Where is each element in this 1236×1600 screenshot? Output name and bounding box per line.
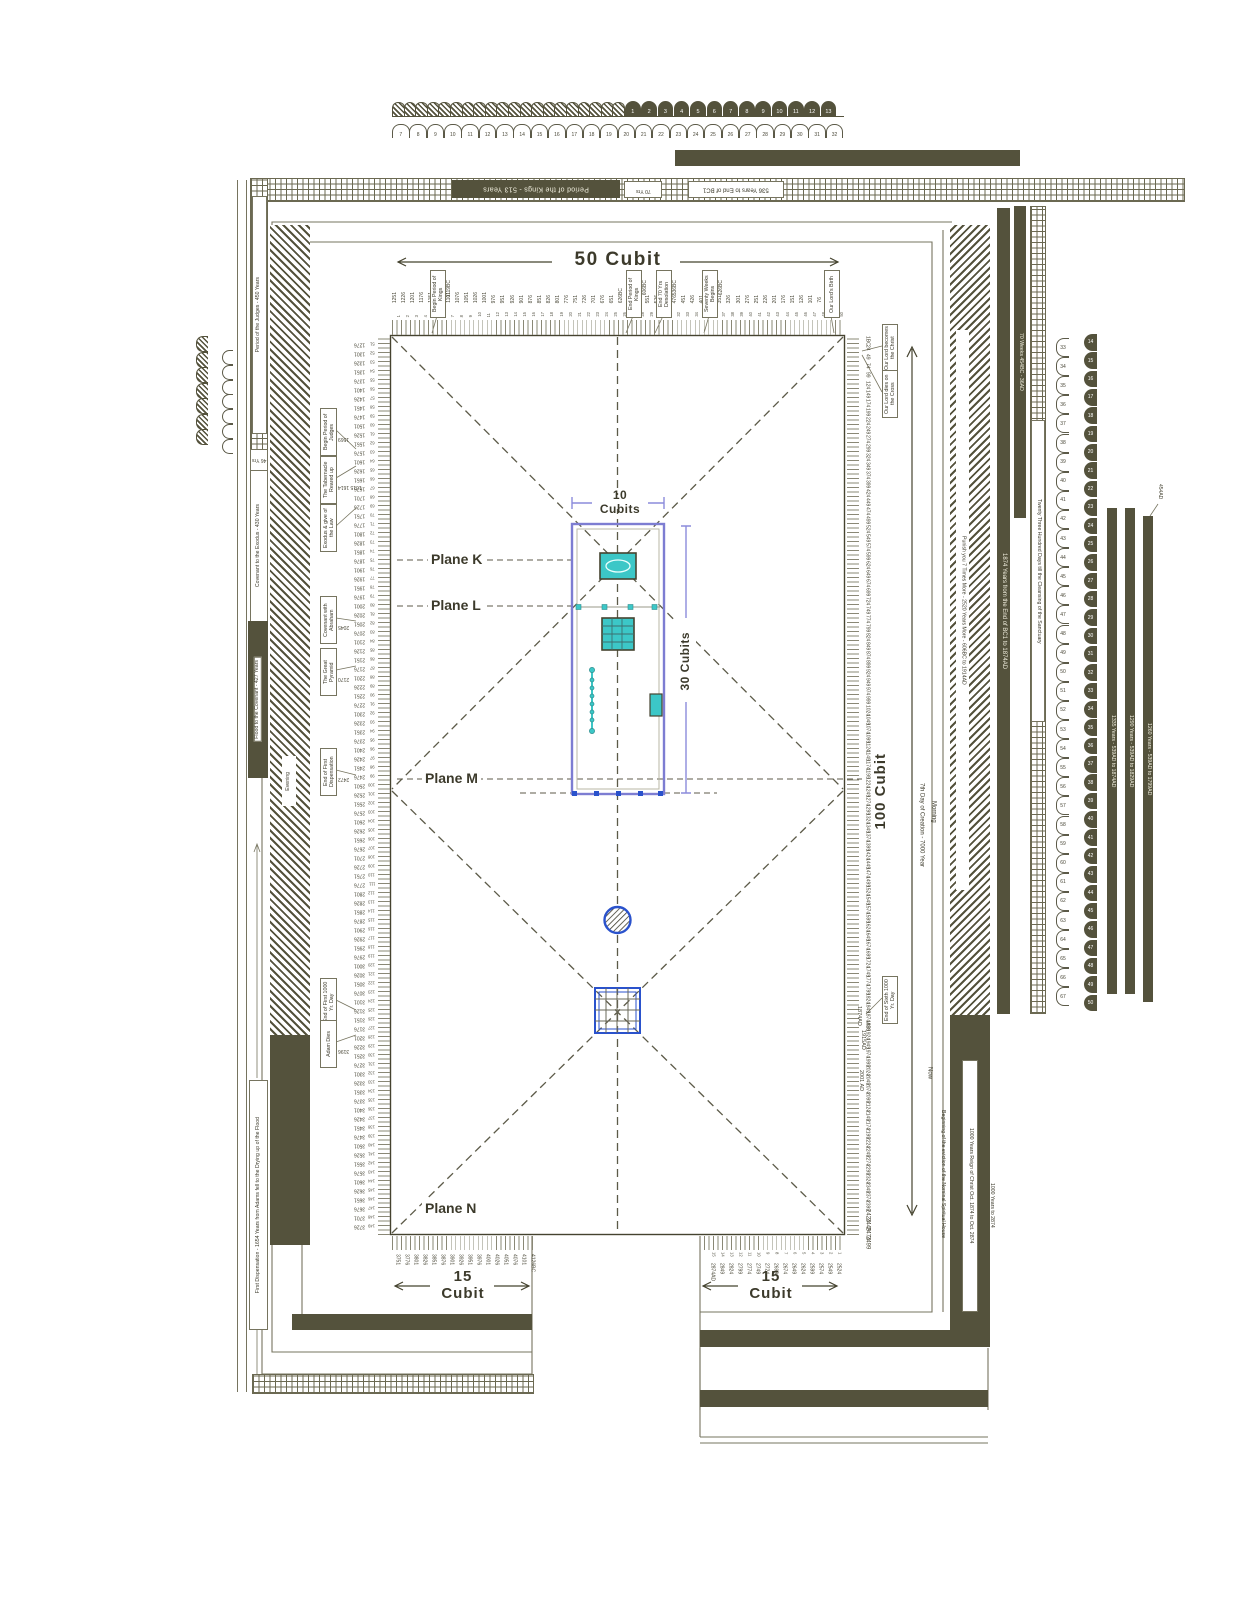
tick-year-label: 3426	[354, 1115, 365, 1121]
mini-hatched-scallop	[196, 429, 208, 445]
tick-year-label: 499	[864, 516, 870, 524]
tick-year-label: 749	[864, 606, 870, 614]
bottom-left-scale-fringe	[392, 1236, 534, 1250]
tick-year-label: 451	[682, 295, 688, 303]
tick-year-label: 349	[864, 462, 870, 470]
tick-year-label: 3176	[354, 1025, 365, 1031]
tick-year-label: 2226	[354, 683, 365, 689]
mini-hatched-scallop	[196, 336, 208, 352]
tick-year-label: 2051	[354, 620, 365, 626]
tick-cubit-label: 86	[370, 656, 375, 661]
tick-cubit-label: 11	[747, 1252, 752, 1256]
mini-arc-scallop	[222, 380, 233, 395]
numbered-dark-scallop: 12	[804, 101, 820, 116]
tick-year-label: 2574	[817, 1263, 823, 1274]
left-annotation-text: The Tabernacle Reared up	[322, 457, 336, 503]
tick-year-label: 574	[864, 543, 870, 551]
tick-year-label: 2674	[781, 1263, 787, 1274]
bottom-right-dark-bar-1	[700, 1330, 988, 1347]
left-annotation: The Great Pyramid	[320, 648, 337, 696]
numbered-arc-scallop: 19	[600, 124, 618, 138]
top-scallop-row-2: 7891011121314151617181920212223242526272…	[392, 124, 844, 142]
tick-year-label: 2801	[354, 890, 365, 896]
tick-cubit-label: 19	[560, 312, 565, 317]
tick-cubit-label: 123	[368, 989, 375, 994]
tick-year-label: 851	[538, 295, 544, 303]
tick-cubit-label: 50	[840, 312, 845, 317]
numbered-arc-scallop: 59	[1056, 835, 1069, 854]
tick-year-label: 2824	[727, 1263, 733, 1274]
left-annotation-text: Covenant with Abraham	[322, 597, 336, 643]
tick-year-label: 3301	[354, 1070, 365, 1076]
numbered-dark-scallop: 30	[1084, 628, 1097, 645]
tick-cubit-label: 45	[795, 312, 800, 317]
tick-year-label: 2726	[354, 863, 365, 869]
tick-year-label: 3451	[354, 1124, 365, 1130]
tick-year-label: 949	[864, 678, 870, 686]
tick-year-label: 3826	[421, 1254, 427, 1265]
tick-cubit-label: 137	[368, 1115, 375, 1120]
tick-cubit-label: 145	[368, 1187, 375, 1192]
tick-year-label: 1526	[354, 431, 365, 437]
to2874-text: 1000 Years to 2874	[988, 1130, 994, 1280]
tick-year-label: 2501	[354, 782, 365, 788]
tick-cubit-label: 54	[370, 368, 375, 373]
numbered-arc-scallop: 8	[409, 124, 427, 138]
tick-cubit-label: 10	[756, 1252, 761, 1257]
days2300-label: Twenty Three Hundred Days till the Clean…	[1035, 499, 1041, 644]
tick-cubit-label: 16	[532, 312, 537, 317]
tick-year-label: 2526	[354, 791, 365, 797]
tick-cubit-label: 93	[370, 719, 375, 724]
numbered-arc-scallop: 7	[392, 124, 410, 138]
tick-year-label: 1476	[354, 413, 365, 419]
numbered-dark-scallop: 36	[1084, 738, 1097, 755]
numbered-dark-scallop: 21	[1084, 462, 1097, 479]
tick-cubit-label: 82	[370, 620, 375, 625]
brazen-altar	[595, 988, 640, 1033]
tick-cubit-label: 74	[370, 548, 375, 553]
tick-year-label: 2901	[354, 926, 365, 932]
left-annotation-text: End of First Dispensation	[322, 749, 336, 795]
top-annotation: Our Lord's Birth	[824, 270, 840, 318]
tick-cubit-label: 104	[368, 818, 375, 823]
tick-cubit-label: 116	[368, 926, 375, 931]
tick-cubit-label: 105	[368, 827, 375, 832]
yrs1335-bar: 1335 Years - 539AD to 1874AD	[1107, 508, 1117, 994]
tick-year-label: 226	[764, 295, 770, 303]
numbered-dark-scallop: 3	[658, 101, 674, 116]
tick-cubit-label: 87	[370, 665, 375, 670]
tick-year-label: 374	[864, 471, 870, 479]
tick-year-label: 3226	[354, 1043, 365, 1049]
tick-year-label: 249	[864, 426, 870, 434]
tick-cubit-label: 70	[370, 512, 375, 517]
numbered-dark-scallop: 49	[1084, 976, 1097, 993]
top-annotation: End Period of Kings	[626, 270, 642, 318]
tick-year-label: 1251	[393, 292, 399, 303]
tick-cubit-label: 101	[368, 791, 375, 796]
tick-year-label: 2151	[354, 656, 365, 662]
tick-cubit-label: 9	[765, 1252, 770, 1254]
left-annotation-text: Adam Dies	[325, 1030, 333, 1058]
tick-year-label: 199	[864, 408, 870, 416]
mini-hatched-scallop	[196, 398, 208, 414]
tick-cubit-label: 9	[469, 315, 474, 317]
tick-cubit-label: 13	[729, 1252, 734, 1257]
tick-cubit-label: 51	[370, 341, 375, 346]
numbered-arc-scallop: 9	[427, 124, 445, 138]
tick-cubit-label: 17	[541, 312, 546, 317]
chart-canvas: 12345678910111213 7891011121314151617181…	[0, 0, 1236, 1600]
left-scale: 1276511301521326531351541376551401561426…	[336, 335, 378, 1235]
tick-year-label: 649	[864, 570, 870, 578]
tick-year-label: 2126	[354, 647, 365, 653]
tick-year-label: 701	[592, 295, 598, 303]
numbered-dark-scallop: 29	[1084, 609, 1097, 626]
tick-cubit-label: 91	[370, 701, 375, 706]
tick-year-label: 76	[818, 297, 824, 303]
numbered-arc-scallop: 16	[548, 124, 566, 138]
tick-cubit-label: 135	[368, 1097, 375, 1102]
plane-k-text: Plane K	[431, 551, 482, 567]
tick-cubit-label: 14	[514, 312, 519, 317]
yrs1290-bar: 1290 Years - 539AD to 1829AD	[1125, 508, 1135, 994]
tick-year-label: 726	[583, 295, 589, 303]
tick-cubit-label: 4	[810, 1252, 815, 1254]
tick-cubit-label: 69	[370, 503, 375, 508]
hatched-scallop	[612, 102, 625, 116]
tick-cubit-label: 140	[368, 1142, 375, 1147]
numbered-arc-scallop: 12	[479, 124, 497, 138]
top-annotation-note: 606BC	[642, 280, 648, 295]
evening-label-box: Evening	[282, 756, 296, 806]
tick-cubit-label: 95	[370, 737, 375, 742]
flood-covenant-label: Flood to the Covenant - 427 Years	[254, 657, 262, 742]
tick-year-label: 2549	[826, 1263, 832, 1274]
numbered-arc-scallop: 51	[1056, 682, 1069, 701]
numbered-arc-scallop: 64	[1056, 930, 1069, 949]
top-annotation-text: Seventy Weeks Begins	[703, 271, 717, 317]
tick-year-label: 176	[782, 295, 788, 303]
numbered-arc-scallop: 39	[1056, 453, 1069, 472]
tick-year-label: 2851	[354, 908, 365, 914]
tick-year-label: 3926	[457, 1254, 463, 1265]
tick-year-label: 924	[864, 669, 870, 677]
first-dispensation-box: First Dispensation - 1654 Years from Ada…	[249, 1080, 268, 1330]
tick-cubit-label: 119	[368, 953, 375, 958]
numbered-arc-scallop: 28	[756, 124, 774, 138]
tick-year-label: 1576	[354, 449, 365, 455]
ten-cubits-text: 10 Cubits	[592, 488, 648, 516]
judges-label: Period of the Judges - 450 Years	[256, 277, 262, 352]
tick-cubit-label: 94	[370, 728, 375, 733]
tick-cubit-label: 72	[370, 530, 375, 535]
numbered-arc-scallop: 49	[1056, 644, 1069, 663]
left-annotation: End of First Dispensation	[320, 748, 337, 796]
showbread-table	[650, 694, 662, 716]
tick-year-label: 2701	[354, 854, 365, 860]
mini-arc-scallop	[222, 350, 233, 365]
tick-year-label: 151	[791, 295, 797, 303]
tick-cubit-label: 44	[786, 312, 791, 317]
right-scale: 1BC2449749912414917419922424927429932434…	[862, 335, 892, 1247]
yrs1290-label: 1290 Years - 539AD to 1829AD	[1127, 715, 1133, 787]
tick-cubit-label: 84	[370, 638, 375, 643]
numbered-dark-scallop: 18	[1084, 407, 1097, 424]
tick-year-label: 1976	[354, 593, 365, 599]
tick-year-label: 3001	[354, 962, 365, 968]
tick-cubit-label: 8	[460, 315, 465, 317]
seventy-yrs-label: 70 Yrs	[636, 187, 651, 193]
mini-hatched-scallop	[196, 414, 208, 430]
bc536-box: 536 Years to End of BC1	[688, 181, 784, 198]
left-annotation-note: 2045	[338, 624, 349, 630]
numbered-dark-scallop: 37	[1084, 756, 1097, 773]
tick-year-label: 1176	[420, 292, 426, 303]
tick-year-label: 4076	[511, 1254, 517, 1265]
tick-cubit-label: 131	[368, 1061, 375, 1066]
tick-cubit-label: 58	[370, 404, 375, 409]
tick-year-label: 474	[864, 507, 870, 515]
tick-year-label: 2599	[808, 1263, 814, 1274]
tick-cubit-label: 111	[369, 881, 375, 886]
tick-year-label: 301	[737, 295, 743, 303]
punish-label-strip: Punish you 7 Times More - 2520 Years Mor…	[956, 330, 969, 890]
reign1000-label-box: 1000 Years Reign of Christ Oct. 1874 to …	[962, 1060, 978, 1312]
tick-year-label: 2551	[354, 800, 365, 806]
tick-year-label: 849	[864, 642, 870, 650]
hatched-scallop	[392, 102, 405, 116]
numbered-arc-scallop: 23	[670, 124, 688, 138]
weeks70-label: 70 Weeks 454BC - 36AD	[1017, 333, 1023, 391]
numbered-dark-scallop: 24	[1084, 518, 1097, 535]
mini-hatched-scallop	[196, 352, 208, 368]
seventh-day-text: 7th Day of Creation - 7000 Year	[918, 700, 925, 950]
tick-year-label: 1051	[465, 292, 471, 303]
right-annotation: Our Lord becomes the Christ	[882, 324, 898, 372]
top-annotation-text: End 70 Yrs Desolation	[657, 271, 671, 317]
tick-year-label: 324	[864, 453, 870, 461]
tick-year-label: 1876	[354, 557, 365, 563]
numbered-arc-scallop: 36	[1056, 395, 1069, 414]
tick-year-label: 1701	[354, 494, 365, 500]
tick-cubit-label: 120	[368, 962, 375, 967]
tick-year-label: 3976	[475, 1254, 481, 1265]
tick-year-label: 2301	[354, 710, 365, 716]
tick-cubit-label: 40	[749, 312, 754, 317]
tick-cubit-label: 13	[505, 312, 510, 317]
now-text: Now	[926, 1067, 933, 1079]
tick-cubit-label: 3	[819, 1252, 824, 1254]
tick-cubit-label: 67	[370, 485, 375, 490]
numbered-dark-scallop: 41	[1084, 829, 1097, 846]
tick-year-label: 751	[574, 295, 580, 303]
tick-year-label: 2176	[354, 665, 365, 671]
tick-cubit-label: 121	[368, 971, 375, 976]
tick-cubit-label: 29	[650, 312, 655, 317]
tick-year-label: 2724	[763, 1263, 769, 1274]
numbered-dark-scallop: 23	[1084, 499, 1097, 516]
tick-year-label: 2776	[354, 881, 365, 887]
tick-year-label: 99	[864, 372, 870, 378]
numbered-arc-scallop: 27	[739, 124, 757, 138]
numbered-arc-scallop: 47	[1056, 605, 1069, 624]
tick-year-label: 3576	[354, 1169, 365, 1175]
bottom-right-dark-bar-2	[700, 1390, 988, 1407]
tick-cubit-label: 139	[368, 1133, 375, 1138]
tick-year-label: 3601	[354, 1178, 365, 1184]
tick-cubit-label: 2	[828, 1252, 833, 1254]
numbered-arc-scallop: 26	[722, 124, 740, 138]
left-annotation-text: Begin Period of Judges	[322, 409, 336, 455]
tick-year-label: 3051	[354, 980, 365, 986]
tick-year-label: 3376	[354, 1097, 365, 1103]
tick-year-label: 399	[864, 480, 870, 488]
numbered-dark-scallop: 14	[1084, 334, 1097, 351]
tick-year-label: 74	[864, 363, 870, 369]
numbered-arc-scallop: 61	[1056, 873, 1069, 892]
tick-cubit-label: 80	[370, 602, 375, 607]
tick-cubit-label: 92	[370, 710, 375, 715]
numbered-dark-scallop: 13	[821, 101, 837, 116]
numbered-dark-scallop: 40	[1084, 811, 1097, 828]
tick-cubit-label: 2	[406, 315, 411, 317]
numbered-arc-scallop: 58	[1056, 816, 1069, 835]
top-annotation-text: End Period of Kings	[627, 271, 641, 317]
top-annotation: Seventy Weeks Begins	[702, 270, 718, 318]
tick-cubit-label: 24	[605, 312, 610, 317]
tick-year-label: 3276	[354, 1061, 365, 1067]
tick-year-label: 251	[755, 295, 761, 303]
tick-year-label: 3851	[430, 1254, 436, 1265]
tick-year-label: 3126	[354, 1007, 365, 1013]
tick-year-label: 2699	[772, 1263, 778, 1274]
tick-year-label: 1026	[474, 292, 480, 303]
tick-year-label: 1301	[354, 350, 365, 356]
numbered-dark-scallop: 38	[1084, 774, 1097, 791]
numbered-arc-scallop: 55	[1056, 758, 1069, 777]
numbered-dark-scallop: 35	[1084, 719, 1097, 736]
right-annotation: End of Sixth 1000 Yr. Day	[882, 976, 898, 1024]
mini-arc-scallop	[222, 394, 233, 409]
numbered-arc-scallop: 65	[1056, 949, 1069, 968]
tick-year-label: 149	[864, 390, 870, 398]
numbered-dark-scallop: 19	[1084, 426, 1097, 443]
weeks70-bar: 70 Weeks 454BC - 36AD	[1014, 206, 1026, 518]
tick-cubit-label: 63	[370, 449, 375, 454]
numbered-arc-scallop: 32	[826, 124, 844, 138]
tick-cubit-label: 109	[368, 863, 375, 868]
tick-year-label: 1726	[354, 503, 365, 509]
tick-year-label: 1901	[354, 566, 365, 572]
top-annotation: End 70 Yrs Desolation	[656, 270, 672, 318]
flood-covenant-bar: Flood to the Covenant - 427 Years	[248, 621, 268, 778]
numbered-dark-scallop: 46	[1084, 921, 1097, 938]
tick-cubit-label: 56	[370, 386, 375, 391]
tick-year-label: 626BC	[619, 288, 625, 303]
tick-year-label: 4001	[484, 1254, 490, 1265]
bottom-left-checkered-bar	[252, 1374, 534, 1394]
tick-year-label: 3801	[412, 1254, 418, 1265]
tick-cubit-label: 136	[368, 1106, 375, 1111]
tick-cubit-label: 65	[370, 467, 375, 472]
tick-year-label: 1601	[354, 458, 365, 464]
tick-year-label: 524	[864, 525, 870, 533]
tick-year-label: 2976	[354, 953, 365, 959]
tick-cubit-label: 129	[368, 1043, 375, 1048]
tick-year-label: 999	[864, 696, 870, 704]
tick-cubit-label: 34	[695, 312, 700, 317]
plane-k-label: Plane K	[428, 551, 485, 567]
top-annotation: Begin Period of Kings	[430, 270, 446, 318]
tick-year-label: 2524	[835, 1263, 841, 1274]
tick-cubit-label: 118	[368, 944, 375, 949]
numbered-dark-scallop: 39	[1084, 793, 1097, 810]
left-annotation: Exodus & give of the Law	[320, 504, 337, 552]
numbered-dark-scallop: 26	[1084, 554, 1097, 571]
tick-cubit-label: 83	[370, 629, 375, 634]
numbered-dark-scallop: 17	[1084, 389, 1097, 406]
tick-cubit-label: 32	[677, 312, 682, 317]
laver	[605, 907, 631, 933]
numbered-arc-scallop: 22	[652, 124, 670, 138]
yrs1874-bar: 1874 Years from the End of BC1 to 1874AD	[997, 208, 1010, 1014]
numbered-dark-scallop: 15	[1084, 352, 1097, 369]
tick-year-label: 476	[673, 295, 679, 303]
numbered-dark-scallop: 33	[1084, 683, 1097, 700]
numbered-dark-scallop: 4	[674, 101, 690, 116]
left-hatched-bar	[270, 225, 310, 1035]
tick-cubit-label: 42	[767, 312, 772, 317]
numbered-arc-scallop: 34	[1056, 357, 1069, 376]
tick-cubit-label: 132	[368, 1070, 375, 1075]
numbered-arc-scallop: 56	[1056, 777, 1069, 796]
tick-year-label: 351	[718, 295, 724, 303]
tick-cubit-label: 127	[368, 1025, 375, 1030]
top-scale-fringe	[392, 320, 844, 335]
tick-cubit-label: 110	[368, 872, 375, 877]
ten-cubits-label: 10 Cubits	[592, 495, 648, 509]
tick-year-label: 2951	[354, 944, 365, 950]
left-annotation-note: 3196	[338, 1048, 349, 1054]
tick-cubit-label: 15	[711, 1252, 716, 1257]
tick-year-label: 2026	[354, 611, 365, 617]
tick-cubit-label: 12	[496, 312, 501, 317]
tick-cubit-label: 15	[523, 312, 528, 317]
tick-cubit-label: 4	[424, 315, 429, 317]
numbered-dark-scallop: 2	[641, 101, 657, 116]
numbered-dark-scallop: 25	[1084, 536, 1097, 553]
eviction-text: Beginning of the eviction of the Nominal…	[936, 1000, 948, 1348]
bottom-right-scale: 152874AD14284913282412279911277410274992…	[708, 1252, 848, 1292]
numbered-arc-scallop: 46	[1056, 586, 1069, 605]
tick-year-label: 876	[529, 295, 535, 303]
numbered-dark-scallop: 20	[1084, 444, 1097, 461]
numbered-dark-scallop: 9	[755, 101, 771, 116]
tick-year-label: 2749	[754, 1263, 760, 1274]
tick-year-label: 2649	[790, 1263, 796, 1274]
tick-cubit-label: 141	[368, 1151, 375, 1156]
tick-year-label: 2001	[354, 602, 365, 608]
numbered-dark-scallop: 32	[1084, 664, 1097, 681]
bottom-right-scale-fringe	[704, 1236, 844, 1250]
numbered-dark-scallop: 45	[1084, 903, 1097, 920]
top-annotation-note: 1119BC	[446, 280, 452, 297]
hatched-scallop	[508, 102, 521, 116]
tick-cubit-label: 88	[370, 674, 375, 679]
tick-year-label: 449	[864, 498, 870, 506]
